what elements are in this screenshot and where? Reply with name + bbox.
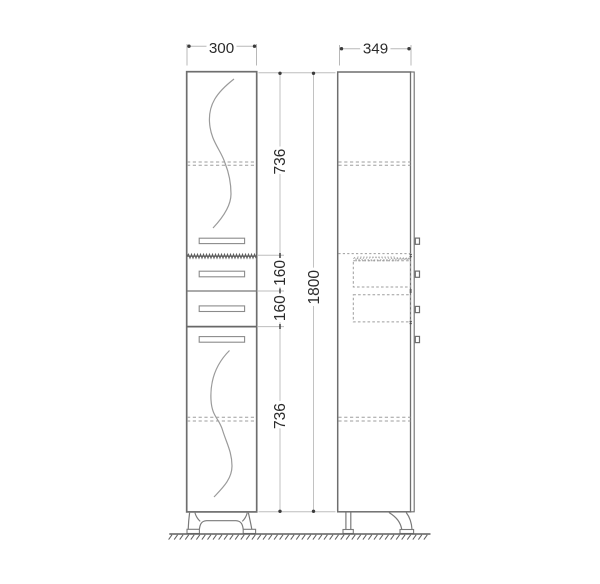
svg-text:349: 349	[363, 40, 388, 57]
svg-text:160: 160	[272, 295, 289, 321]
svg-text:160: 160	[272, 260, 289, 286]
svg-text:300: 300	[209, 40, 234, 57]
svg-text:736: 736	[272, 149, 289, 175]
svg-text:736: 736	[272, 403, 289, 429]
svg-text:1800: 1800	[306, 270, 323, 305]
